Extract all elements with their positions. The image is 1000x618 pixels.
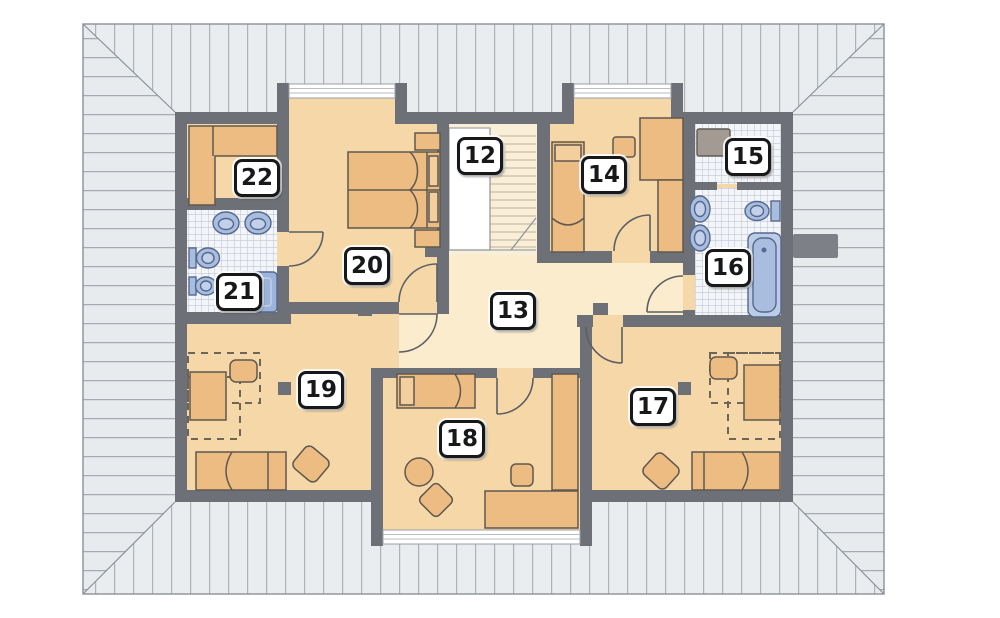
- nightstand: [415, 230, 440, 247]
- desk-18: [485, 491, 578, 528]
- chimney: [793, 234, 838, 258]
- dormer-window-room-18: [383, 530, 580, 544]
- sink: [690, 225, 710, 251]
- bed-19: [196, 452, 286, 490]
- room-label-20: 20: [344, 247, 390, 285]
- roof-slope-right: [793, 24, 884, 594]
- room-label-13: 13: [490, 292, 536, 330]
- pillow: [429, 192, 438, 222]
- room-label-15: 15: [725, 138, 771, 176]
- chair-17: [710, 357, 737, 379]
- nightstand: [415, 133, 440, 150]
- dormer-window-room-14: [574, 84, 671, 98]
- room-label-19: 19: [298, 371, 344, 409]
- room-label-12: 12: [457, 137, 503, 175]
- room-label-21: 21: [216, 273, 262, 311]
- nightstand-14: [613, 137, 635, 157]
- roof-slope-left: [83, 24, 175, 594]
- room-label-22: 22: [234, 159, 280, 197]
- room-label-14: 14: [581, 156, 627, 194]
- toilet: [745, 201, 780, 221]
- sink: [690, 196, 710, 222]
- room-label-17: 17: [630, 388, 676, 426]
- bidet: [189, 277, 217, 295]
- column: [278, 382, 291, 395]
- desk-17: [744, 365, 780, 420]
- toilet: [189, 248, 220, 268]
- sink: [245, 212, 271, 234]
- pillow: [555, 145, 581, 161]
- sink: [213, 212, 239, 234]
- column: [358, 303, 372, 316]
- wardrobe-18: [552, 374, 578, 490]
- chair-18: [511, 464, 533, 486]
- bed-14: [552, 142, 584, 252]
- pillow: [429, 156, 438, 186]
- dormer-window-room-20: [289, 84, 395, 98]
- desk-19: [190, 372, 226, 420]
- bed-17: [692, 452, 780, 490]
- room-label-16: 16: [705, 249, 751, 287]
- room-label-18: 18: [439, 420, 485, 458]
- bathtub: [748, 233, 781, 317]
- roof-slope-top: [83, 24, 884, 112]
- pillow: [400, 377, 414, 405]
- column: [678, 382, 691, 395]
- bed-18: [397, 374, 475, 408]
- column: [593, 303, 608, 315]
- floor-plan-canvas: 12 13 14 15 16 17 18 19 20 21 22: [0, 0, 1000, 618]
- round-table-18: [405, 458, 433, 486]
- chair-19: [230, 360, 257, 382]
